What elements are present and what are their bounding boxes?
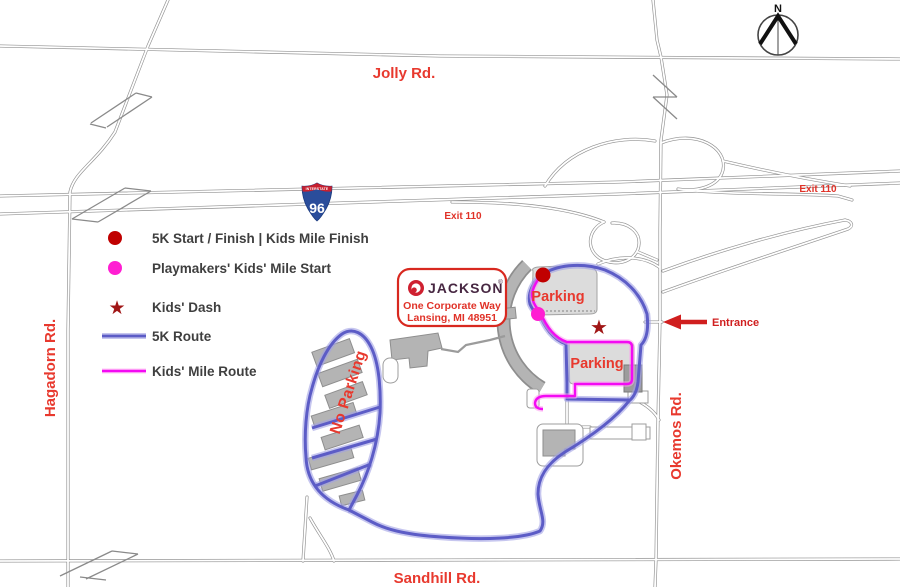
shield-number-text: 96 [309,200,325,216]
start-finish-dot [536,268,551,283]
road-label-hagadorn: Hagadorn Rd. [42,319,59,417]
legend-kids-dash-star-icon: ★ [108,298,125,319]
map-canvas: ★ Jolly Rd. Sandhill Rd. Hagadorn Rd. Ok… [0,0,900,587]
kids-mile-start-dot [531,307,545,321]
legend-item-start-finish: 5K Start / Finish | Kids Mile Finish [108,231,369,246]
legend-label: Playmakers' Kids' Mile Start [152,261,332,276]
shield-interstate-text: INTERSTATE [306,187,329,191]
jackson-logo-icon [408,280,424,296]
road-label-jolly: Jolly Rd. [373,65,436,82]
compass-north-label: N [774,3,782,15]
entrance-arrow: Entrance [663,315,759,330]
legend-item-kids-mile-start: Playmakers' Kids' Mile Start [108,261,332,276]
legend-item-kids-dash: ★ Kids' Dash [108,298,221,319]
race-map-page: ★ Jolly Rd. Sandhill Rd. Hagadorn Rd. Ok… [0,0,900,587]
legend-start-finish-dot-icon [108,231,122,245]
venue-brand: JACKSON [428,280,503,296]
legend-label: 5K Route [152,329,212,344]
road-label-okemos: Okemos Rd. [668,392,685,480]
kids-dash-star: ★ [590,317,608,339]
legend-kids-start-dot-icon [108,261,122,275]
venue-address-line2: Lansing, MI 48951 [407,312,497,324]
legend-label: Kids' Mile Route [152,364,257,379]
venue-card: JACKSON ® One Corporate Way Lansing, MI … [398,269,506,326]
interstate-96-shield: INTERSTATE 96 [302,183,332,221]
legend-label: Kids' Dash [152,300,221,315]
venue-address-line1: One Corporate Way [403,300,501,312]
road-label-sandhill: Sandhill Rd. [394,570,481,587]
parking-label-lower: Parking [570,356,623,372]
entrance-arrow-icon [663,315,681,330]
exit-110-label-west: Exit 110 [444,211,482,222]
entrance-label: Entrance [712,317,759,329]
north-compass-icon: N [758,3,798,55]
exit-110-label-east: Exit 110 [799,184,837,195]
legend-item-route-kids-mile: Kids' Mile Route [102,364,257,379]
legend-label: 5K Start / Finish | Kids Mile Finish [152,231,369,246]
venue-trademark: ® [498,278,503,286]
parking-label-upper: Parking [531,289,584,305]
legend-item-route-5k: 5K Route [102,329,212,344]
